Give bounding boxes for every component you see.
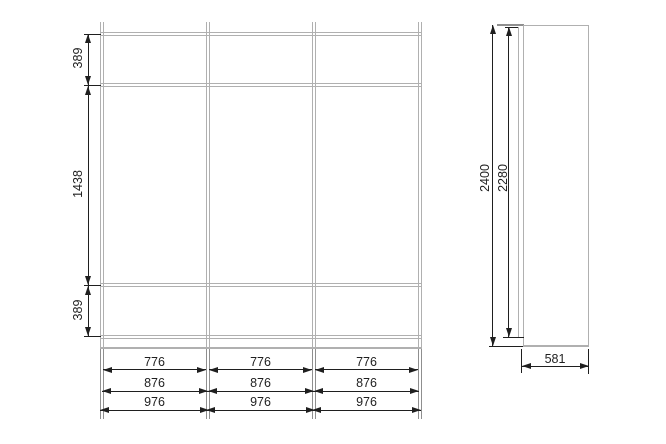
arrow-left: [100, 407, 109, 413]
dim-label-876-bay1: 876: [135, 377, 175, 391]
dim-label-876-bay2: 876: [241, 377, 281, 391]
arrow-right: [410, 388, 419, 394]
dim-line-2400: [492, 25, 493, 346]
dim-label-581: 581: [535, 352, 575, 366]
dim-line: [102, 391, 208, 392]
arrow-left: [312, 407, 321, 413]
arrow-left: [522, 363, 531, 369]
dim-label-976-bay1: 976: [135, 396, 175, 410]
dim-label-389-bottom: 389: [71, 290, 85, 330]
arrow-up: [85, 34, 91, 43]
dim-label-776-bay1: 776: [135, 356, 175, 370]
side-body-bottom: [523, 345, 589, 347]
side-body-top: [523, 25, 589, 26]
dim-label-389-top: 389: [71, 38, 85, 78]
side-body-right: [588, 25, 589, 346]
arrow-down: [85, 327, 91, 336]
front-partition-right: [418, 22, 422, 349]
dim-label-876-bay3: 876: [347, 377, 387, 391]
arrow-right: [305, 388, 314, 394]
front-partition-mid1: [206, 22, 210, 349]
dim-label-976-bay2: 976: [241, 396, 281, 410]
arrow-up: [85, 86, 91, 95]
arrow-left: [315, 367, 324, 373]
arrow-left: [206, 407, 215, 413]
extension-line: [588, 349, 589, 374]
arrow-right: [199, 388, 208, 394]
extension-line: [421, 349, 422, 419]
front-partition-mid2: [312, 22, 316, 349]
dim-label-2280: 2280: [496, 158, 510, 198]
arrow-down: [85, 276, 91, 285]
arrow-right: [197, 367, 206, 373]
side-body-left: [523, 25, 524, 346]
front-top-rail: [100, 32, 422, 36]
dim-line: [312, 410, 421, 411]
dim-label-2400: 2400: [478, 158, 492, 198]
dim-label-776-bay3: 776: [347, 356, 387, 370]
extension-line: [505, 27, 518, 28]
arrow-right: [412, 407, 421, 413]
dim-line: [314, 391, 420, 392]
dim-line-581: [522, 366, 589, 367]
dim-label-976-bay3: 976: [347, 396, 387, 410]
front-base-line: [100, 347, 422, 349]
dim-line: [208, 391, 314, 392]
front-partition-left: [100, 22, 104, 349]
side-door-front-line: [518, 27, 519, 338]
arrow-left: [314, 388, 323, 394]
arrow-down: [85, 76, 91, 85]
extension-line: [489, 346, 523, 347]
dim-line: [206, 410, 315, 411]
arrow-left: [102, 388, 111, 394]
arrow-up: [85, 286, 91, 295]
front-bottom-shelf: [100, 335, 422, 339]
arrow-left: [208, 388, 217, 394]
extension-line: [84, 336, 101, 337]
arrow-right: [409, 367, 418, 373]
arrow-up: [490, 25, 496, 34]
front-shelf-upper: [100, 83, 422, 87]
arrow-down: [506, 328, 512, 337]
dim-line: [100, 410, 209, 411]
dim-label-1438: 1438: [71, 164, 85, 204]
dim-label-776-bay2: 776: [241, 356, 281, 370]
technical-drawing: 389 1438 389 776 776 776: [0, 0, 666, 444]
arrow-up: [506, 27, 512, 36]
arrow-right: [580, 363, 589, 369]
front-shelf-lower: [100, 283, 422, 287]
arrow-left: [209, 367, 218, 373]
arrow-left: [103, 367, 112, 373]
arrow-right: [303, 367, 312, 373]
extension-line: [503, 337, 524, 338]
